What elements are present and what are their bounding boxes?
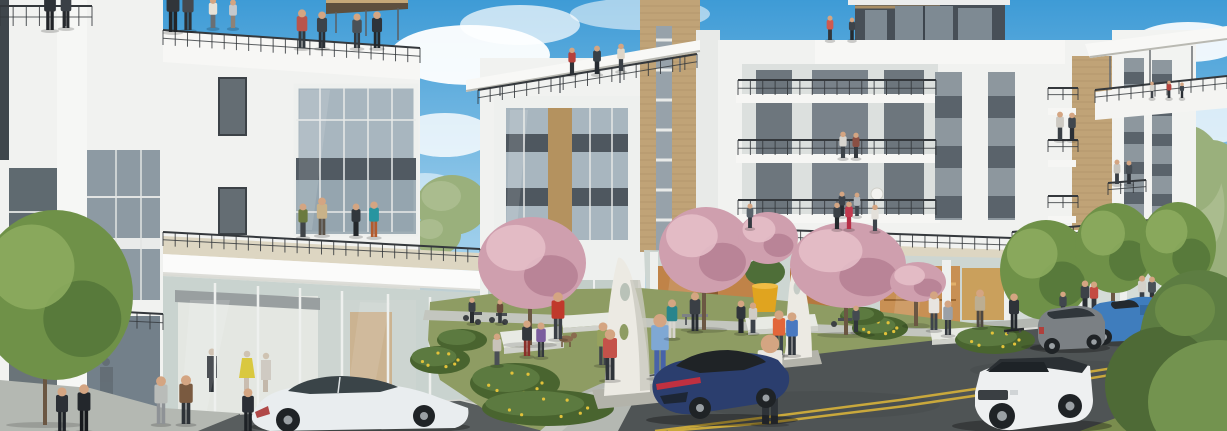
balcony-slab (736, 94, 940, 103)
tree-blossom (738, 212, 798, 264)
bush (437, 329, 487, 351)
architectural-rendering-canvas (0, 0, 1227, 431)
parapet (815, 40, 1065, 64)
window (219, 78, 246, 135)
cloud (460, 5, 580, 45)
shop-interior-warm (962, 268, 1006, 320)
dark-pilaster (0, 0, 9, 160)
window (219, 188, 246, 234)
